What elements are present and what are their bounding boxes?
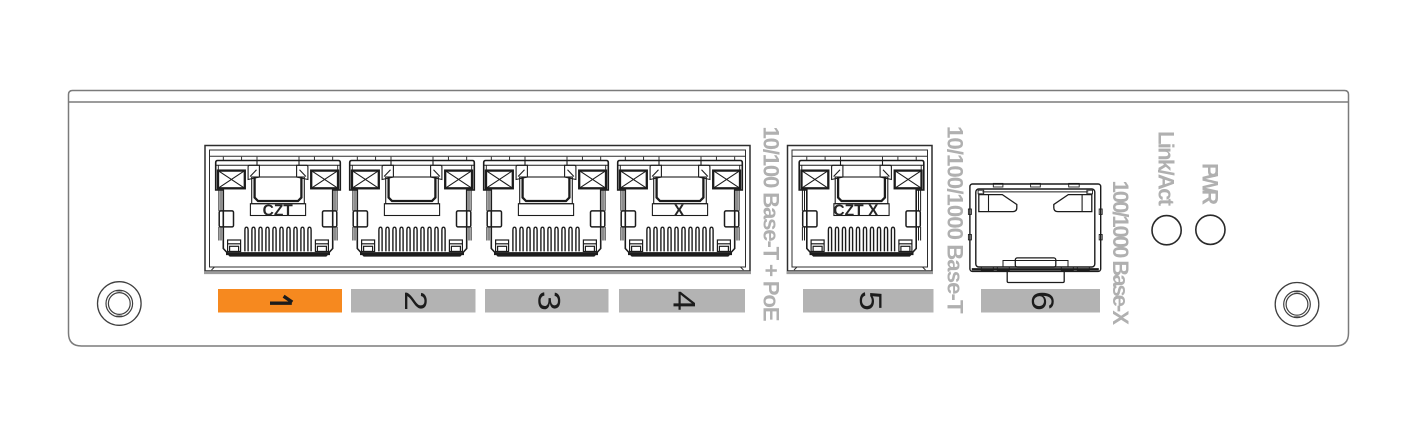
svg-text:X: X	[674, 202, 685, 219]
svg-text:10/100/1000 Base-T: 10/100/1000 Base-T	[943, 126, 968, 314]
svg-text:Link/Act: Link/Act	[1154, 131, 1179, 207]
svg-text:10/100 Base-T + PoE: 10/100 Base-T + PoE	[759, 127, 784, 322]
svg-text:3: 3	[531, 291, 567, 311]
svg-text:6: 6	[1025, 291, 1061, 311]
svg-text:5: 5	[853, 291, 889, 311]
svg-text:2: 2	[398, 291, 434, 311]
svg-text:PWR: PWR	[1197, 163, 1222, 205]
svg-text:100/1000 Base-X: 100/1000 Base-X	[1108, 181, 1133, 326]
svg-text:4: 4	[667, 291, 703, 311]
svg-text:CZT: CZT	[263, 202, 294, 219]
svg-text:X: X	[868, 202, 879, 219]
svg-text:CZT: CZT	[833, 202, 864, 219]
